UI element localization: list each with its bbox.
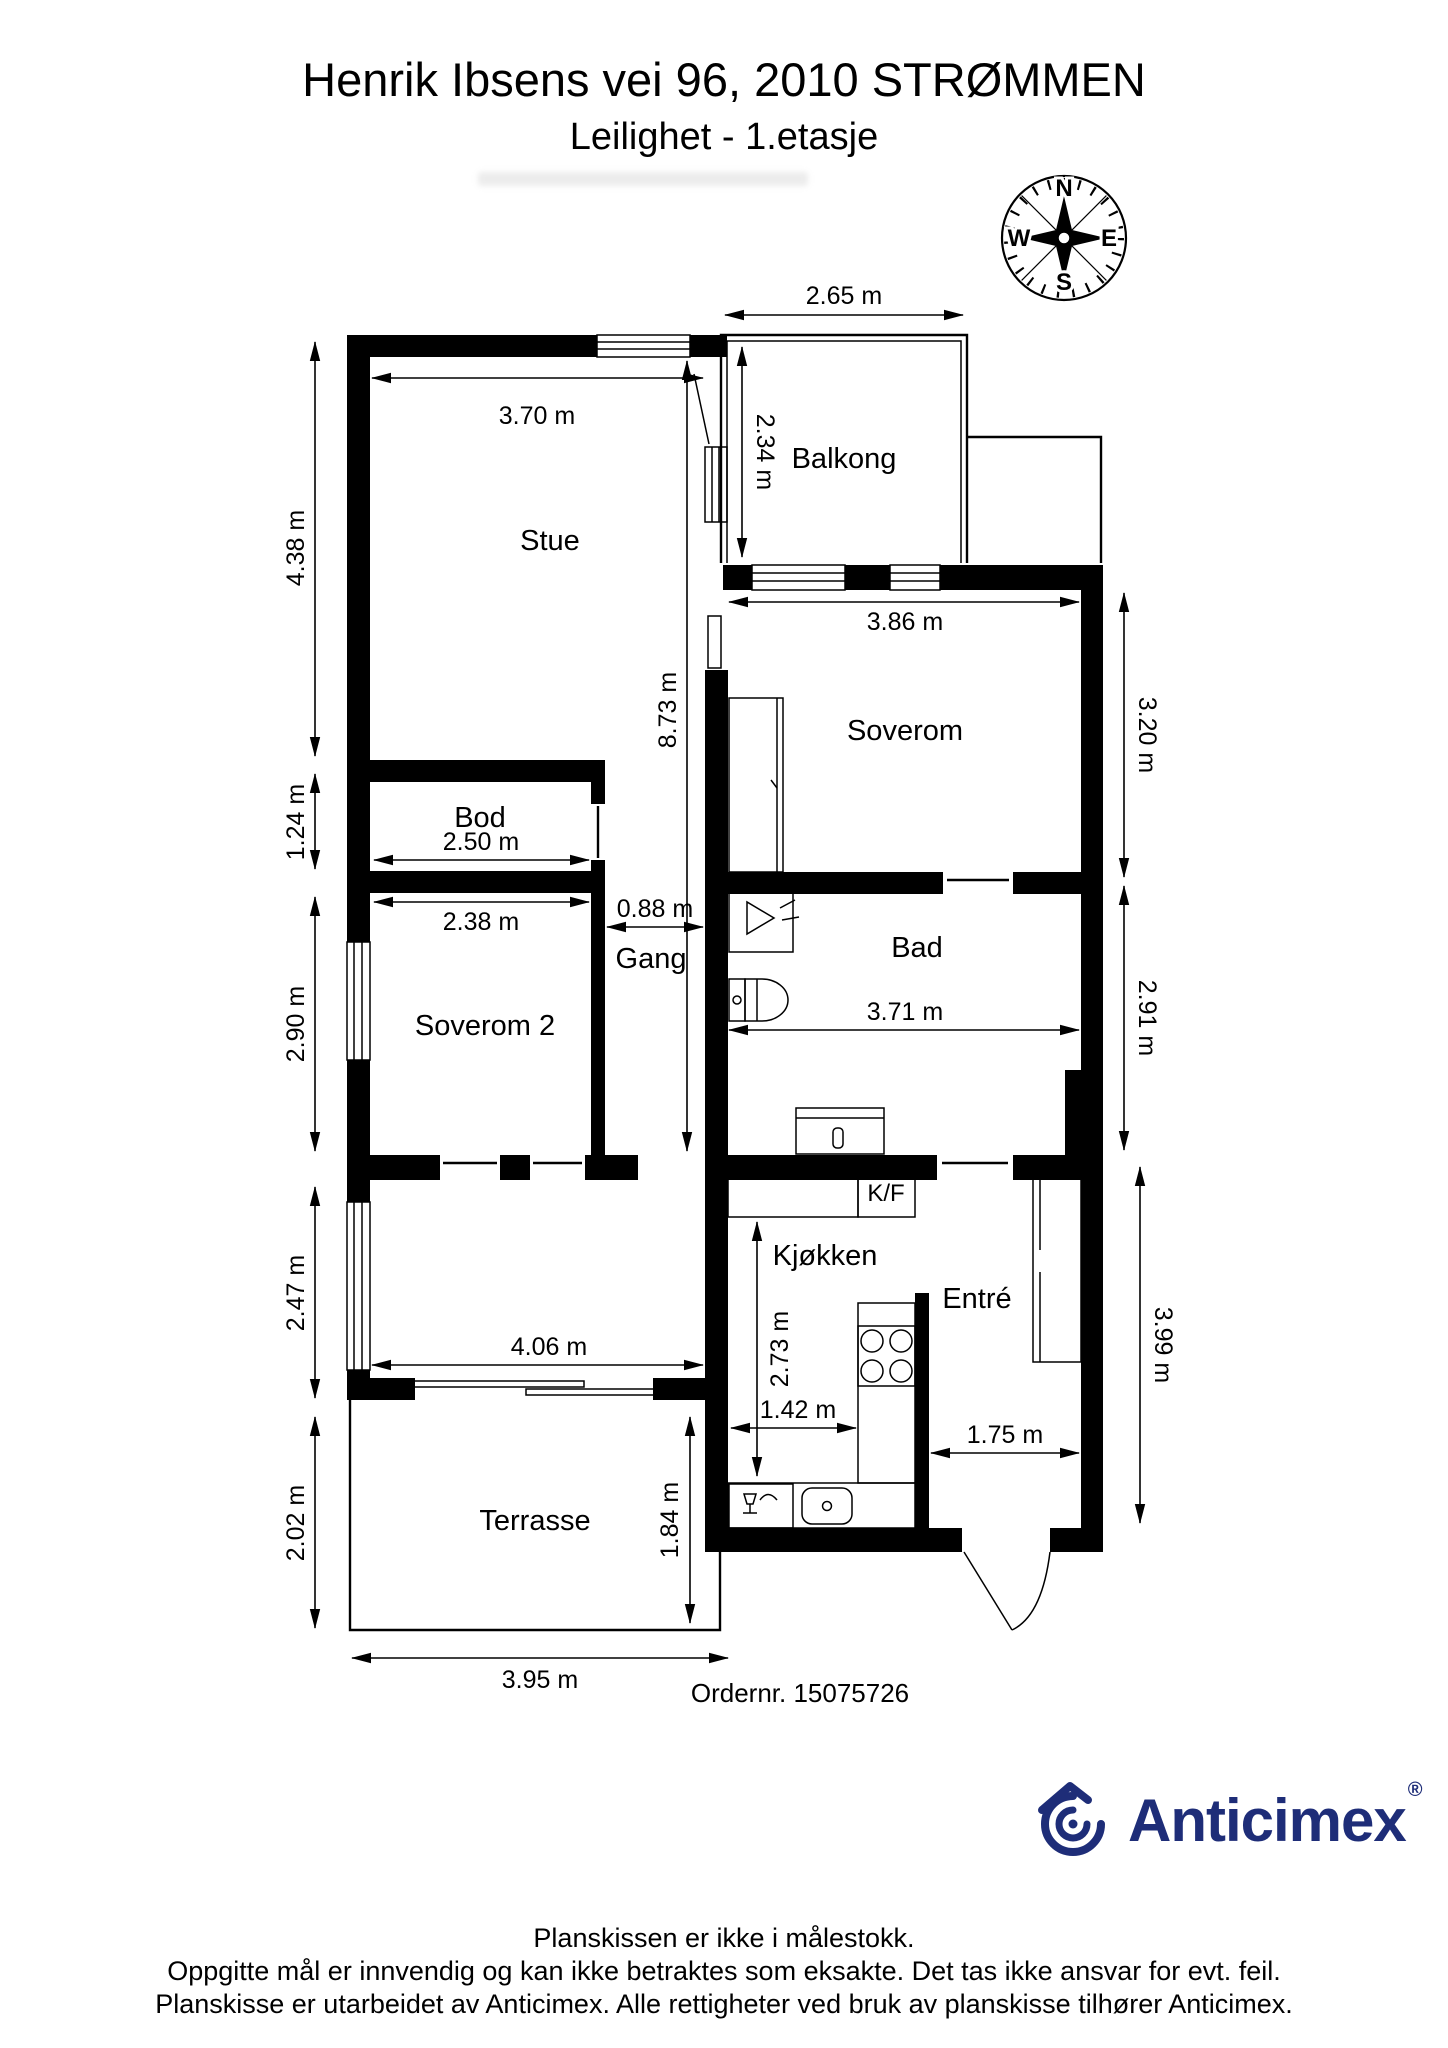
dim-soverom-width: 3.86 m [729, 602, 1079, 636]
room-label-soverom: Soverom [847, 715, 963, 747]
svg-text:3.95 m: 3.95 m [502, 1666, 578, 1690]
disclaimer-line-1: Planskissen er ikke i målestokk. [0, 1922, 1448, 1955]
window-stue-top [597, 335, 690, 357]
soverom-wardrobe [729, 698, 783, 872]
compass-north: N [1055, 175, 1072, 202]
svg-text:1.75 m: 1.75 m [967, 1421, 1043, 1449]
shower [729, 886, 799, 952]
bathroom-fixtures [729, 886, 884, 1154]
kitchen-counter-bottom [728, 1483, 915, 1528]
anticimex-logo: Anticimex® [1028, 1772, 1438, 1867]
svg-text:2.73 m: 2.73 m [766, 1311, 794, 1387]
walls [347, 335, 1103, 1552]
svg-text:1.24 m: 1.24 m [282, 784, 310, 860]
page-title: Henrik Ibsens vei 96, 2010 STRØMMEN [0, 52, 1448, 107]
toilet [729, 979, 788, 1021]
dim-balkong-width: 2.65 m [725, 282, 963, 315]
anticimex-logo-icon [1028, 1775, 1120, 1861]
svg-text:1.42 m: 1.42 m [760, 1396, 836, 1424]
room-label-balkong: Balkong [792, 443, 897, 475]
svg-text:1.84 m: 1.84 m [656, 1482, 684, 1558]
registered-mark: ® [1408, 1779, 1422, 1801]
disclaimer-line-3: Planskisse er utarbeidet av Anticimex. A… [0, 1988, 1448, 2021]
window-stue2-left [347, 1202, 370, 1370]
dim-bod-height: 1.24 m [282, 774, 315, 869]
dim-stue-height: 4.38 m [282, 342, 315, 756]
kitchen-fixtures [728, 1162, 915, 1528]
balcony-door-leaf [694, 374, 709, 444]
faded-watermark [478, 172, 808, 186]
dim-bad-height: 2.91 m [1124, 886, 1161, 1150]
floor-plan-page: Henrik Ibsens vei 96, 2010 STRØMMEN Leil… [0, 0, 1448, 2048]
disclaimer: Planskissen er ikke i målestokk. Oppgitt… [0, 1922, 1448, 2021]
room-label-kjokken: Kjøkken [773, 1240, 878, 1272]
room-label-bad: Bad [891, 932, 943, 964]
svg-text:2.34 m: 2.34 m [751, 414, 779, 490]
disclaimer-line-2: Oppgitte mål er innvendig og kan ikke be… [0, 1955, 1448, 1988]
dim-stue2-height: 2.47 m [282, 1187, 315, 1398]
svg-text:3.86 m: 3.86 m [867, 608, 943, 636]
anticimex-logo-text: Anticimex® [1128, 1772, 1420, 1863]
room-label-stue: Stue [520, 525, 580, 557]
svg-text:3.71 m: 3.71 m [867, 998, 943, 1026]
vanity [796, 1108, 884, 1154]
dim-entre-width: 1.75 m [931, 1421, 1079, 1453]
entre-wardrobe [1033, 1160, 1081, 1362]
dishwasher [729, 1484, 793, 1528]
dim-soverom-height: 3.20 m [1124, 593, 1161, 877]
window-soverom-2 [890, 565, 940, 590]
svg-text:2.91 m: 2.91 m [1133, 980, 1161, 1056]
doors [412, 374, 1050, 1630]
dim-kjokken-width: 1.42 m [731, 1396, 856, 1428]
dim-corridor-length: 8.73 m [654, 361, 687, 1151]
sliding-terrace-door [412, 1381, 654, 1395]
svg-text:4.38 m: 4.38 m [282, 510, 310, 586]
window-stue-right [705, 447, 727, 522]
window-soverom-1 [752, 565, 845, 590]
room-label-entre: Entré [942, 1283, 1011, 1315]
windows [347, 335, 940, 1370]
dim-gang-width: 0.88 m [607, 895, 703, 927]
dim-entre-height: 3.99 m [1140, 1167, 1177, 1523]
svg-text:3.20 m: 3.20 m [1133, 697, 1161, 773]
dim-balkong-depth: 2.34 m [742, 347, 779, 557]
svg-text:2.38 m: 2.38 m [443, 908, 519, 936]
kitchen-counter-right [858, 1303, 915, 1483]
sink [802, 1488, 852, 1524]
svg-text:3.70 m: 3.70 m [499, 402, 575, 430]
page-subtitle: Leilighet - 1.etasje [0, 116, 1448, 159]
floor-plan-drawing: 3.70 m 2.65 m 2.34 m 4.38 m 1.24 m 2.90 … [250, 230, 1200, 1690]
svg-text:0.88 m: 0.88 m [617, 895, 693, 923]
entry-door-swing [964, 1552, 1050, 1630]
svg-text:2.02 m: 2.02 m [282, 1485, 310, 1561]
radiator [708, 616, 721, 668]
svg-text:2.65 m: 2.65 m [806, 282, 882, 310]
room-label-soverom2: Soverom 2 [415, 1010, 555, 1042]
dim-stue-width: 3.70 m [372, 378, 703, 430]
svg-text:2.47 m: 2.47 m [282, 1255, 310, 1331]
stove [858, 1326, 915, 1386]
svg-text:4.06 m: 4.06 m [511, 1333, 587, 1361]
room-label-kf: K/F [867, 1180, 904, 1207]
svg-text:8.73 m: 8.73 m [654, 672, 682, 748]
dim-stue2-width: 4.06 m [372, 1333, 703, 1365]
order-number: Ordernr. 15075726 [600, 1678, 1000, 1709]
svg-text:3.99 m: 3.99 m [1149, 1307, 1177, 1383]
dim-soverom2-width: 2.38 m [374, 902, 589, 936]
window-soverom2-left [347, 942, 370, 1060]
dim-terrasse-height: 2.02 m [282, 1417, 315, 1628]
dim-terrasse-door-height: 1.84 m [656, 1417, 690, 1623]
dim-soverom2-height: 2.90 m [282, 897, 315, 1151]
room-label-gang: Gang [616, 943, 687, 975]
room-label-bod: Bod [454, 802, 506, 834]
svg-text:2.90 m: 2.90 m [282, 986, 310, 1062]
room-label-terrasse: Terrasse [479, 1505, 590, 1537]
